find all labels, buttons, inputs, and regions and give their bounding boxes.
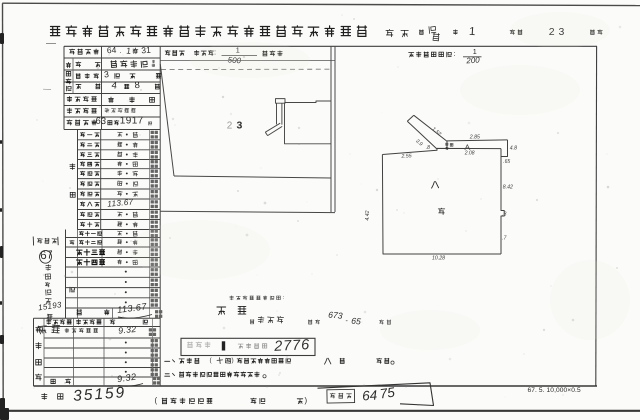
- svg-text:15193: 15193: [38, 300, 63, 312]
- svg-text:(: (: [210, 357, 213, 364]
- svg-text:8.42: 8.42: [503, 184, 513, 190]
- svg-text:.3: .3: [502, 212, 506, 218]
- svg-text:.65: .65: [503, 159, 510, 165]
- svg-text:113.67: 113.67: [107, 197, 134, 208]
- svg-text:75: 75: [379, 384, 396, 401]
- svg-text:3: 3: [237, 120, 243, 132]
- svg-text:-: -: [346, 318, 349, 325]
- svg-text:63: 63: [95, 116, 106, 128]
- svg-text:2: 2: [227, 121, 233, 132]
- svg-text:): ): [305, 396, 308, 405]
- svg-text:64: 64: [107, 45, 117, 55]
- svg-text:2.85: 2.85: [469, 134, 480, 140]
- svg-text:31: 31: [141, 45, 151, 56]
- svg-text:3: 3: [104, 69, 110, 79]
- svg-text:35159: 35159: [73, 384, 127, 405]
- svg-text::: :: [454, 49, 456, 58]
- svg-text:.: .: [120, 48, 122, 55]
- svg-text:3.9: 3.9: [414, 138, 423, 147]
- svg-text:2.55: 2.55: [400, 153, 411, 159]
- svg-text:): ): [232, 357, 234, 364]
- svg-text:4.42: 4.42: [365, 210, 371, 220]
- svg-text:200: 200: [465, 55, 480, 65]
- svg-text:9.32: 9.32: [116, 372, 137, 385]
- svg-text:.8: .8: [426, 145, 430, 151]
- svg-text:64: 64: [362, 387, 378, 403]
- svg-text:1: 1: [473, 47, 477, 56]
- svg-text:(: (: [155, 396, 158, 405]
- svg-text:67. 5. 10,000×0.5: 67. 5. 10,000×0.5: [528, 387, 581, 394]
- svg-text:2776: 2776: [273, 337, 311, 355]
- svg-text:65: 65: [351, 316, 362, 327]
- svg-text:1: 1: [469, 26, 476, 38]
- svg-text:10.28: 10.28: [432, 256, 445, 262]
- svg-text:8: 8: [134, 80, 140, 91]
- svg-text:.7: .7: [502, 236, 506, 242]
- svg-text:1917: 1917: [120, 116, 144, 127]
- svg-text:113.67: 113.67: [117, 301, 148, 315]
- svg-text:4: 4: [111, 80, 118, 92]
- svg-text:4.8: 4.8: [510, 145, 517, 151]
- svg-text:1: 1: [126, 45, 132, 55]
- svg-text:673: 673: [328, 310, 343, 321]
- svg-text::: :: [283, 295, 285, 301]
- svg-text:67: 67: [40, 249, 54, 262]
- svg-text:2.08: 2.08: [464, 151, 475, 157]
- svg-text:9.32: 9.32: [118, 324, 137, 336]
